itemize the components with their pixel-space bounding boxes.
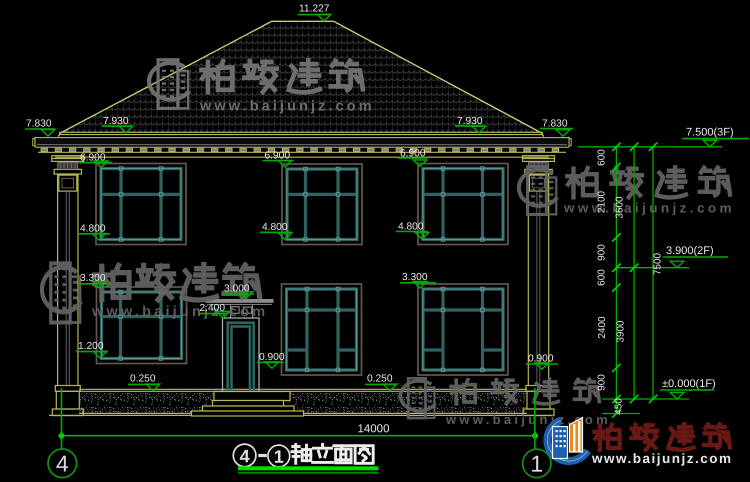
svg-text:4: 4 (56, 450, 69, 476)
svg-text:2400: 2400 (597, 316, 608, 339)
svg-text:7.930: 7.930 (103, 116, 129, 127)
svg-text:www.baijunjz.com: www.baijunjz.com (91, 304, 268, 320)
svg-text:0.250: 0.250 (367, 373, 393, 384)
svg-text:www.baijunjz.com: www.baijunjz.com (445, 412, 611, 427)
svg-text:4: 4 (240, 446, 250, 466)
svg-text:3.900(2F): 3.900(2F) (666, 245, 714, 257)
svg-text:1.200: 1.200 (78, 341, 104, 352)
svg-text:4.800: 4.800 (262, 222, 288, 233)
svg-text:900: 900 (597, 244, 608, 261)
svg-text:3600: 3600 (615, 196, 626, 219)
svg-text:7500: 7500 (653, 252, 664, 275)
svg-text:3.000: 3.000 (224, 283, 250, 294)
svg-text:600: 600 (597, 269, 608, 286)
svg-text:900: 900 (597, 374, 608, 391)
svg-text:www.baijunjz.com: www.baijunjz.com (199, 98, 375, 114)
svg-text:0.250: 0.250 (130, 373, 156, 384)
svg-text:2.400: 2.400 (199, 303, 225, 314)
svg-text:1: 1 (530, 451, 543, 477)
svg-text:±0.000(1F): ±0.000(1F) (662, 378, 716, 390)
svg-text:14000: 14000 (358, 423, 390, 435)
svg-text:1: 1 (274, 447, 284, 467)
svg-text:600: 600 (597, 149, 608, 166)
svg-text:www.baijunjz.com: www.baijunjz.com (591, 451, 733, 466)
svg-text:3900: 3900 (616, 320, 627, 343)
svg-text:7.830: 7.830 (26, 118, 52, 129)
svg-text:7.500(3F): 7.500(3F) (686, 126, 734, 138)
svg-text:11.227: 11.227 (299, 3, 330, 14)
svg-text:www.baijunjz.com: www.baijunjz.com (563, 200, 735, 215)
svg-text:2100: 2100 (597, 190, 608, 213)
svg-text:450: 450 (614, 398, 625, 415)
